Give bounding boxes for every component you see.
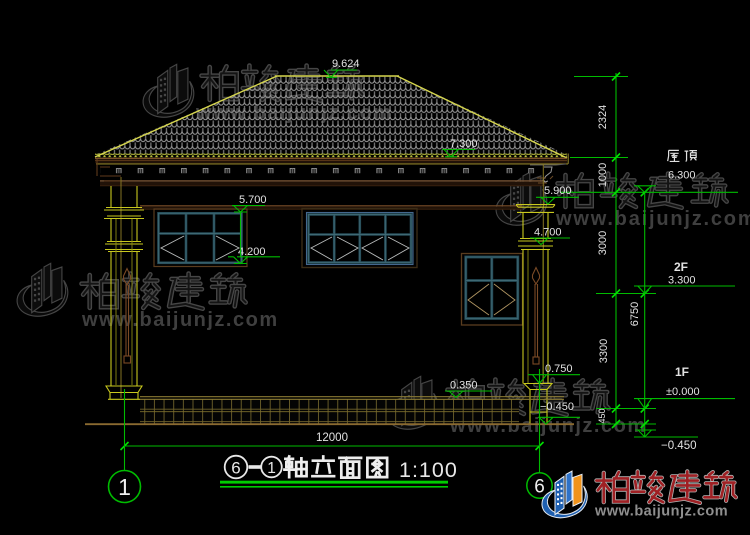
svg-text:1000: 1000 [597,163,609,187]
svg-text:1F: 1F [675,365,689,379]
svg-text:6: 6 [534,477,545,498]
svg-text:6750: 6750 [629,302,641,326]
svg-text:1:100: 1:100 [399,458,458,482]
svg-text:5.700: 5.700 [239,194,267,206]
svg-text:www.baijunjz.com: www.baijunjz.com [555,208,750,230]
svg-text:0.350: 0.350 [450,380,478,392]
svg-text:5.900: 5.900 [544,185,572,197]
svg-text:2324: 2324 [597,105,609,129]
svg-text:2F: 2F [674,260,688,274]
svg-text:1: 1 [118,474,131,500]
svg-text:4.200: 4.200 [238,246,266,258]
svg-text:12000: 12000 [316,432,348,444]
svg-text:−0.450: −0.450 [661,440,697,452]
svg-text:1: 1 [267,460,276,477]
svg-text:3000: 3000 [597,231,609,255]
svg-text:3.300: 3.300 [668,275,696,287]
svg-text:0.750: 0.750 [545,363,573,375]
svg-text:450: 450 [597,408,607,423]
svg-text:6: 6 [231,459,240,478]
svg-text:9.624: 9.624 [332,58,360,70]
svg-text:±0.000: ±0.000 [666,386,700,398]
svg-text:7.300: 7.300 [450,138,478,150]
svg-text:4.700: 4.700 [534,227,562,239]
svg-text:−0.450: −0.450 [540,401,574,413]
svg-text:3300: 3300 [598,339,610,363]
svg-text:www.baijunjz.com: www.baijunjz.com [594,504,728,520]
svg-text:6.300: 6.300 [668,170,696,182]
